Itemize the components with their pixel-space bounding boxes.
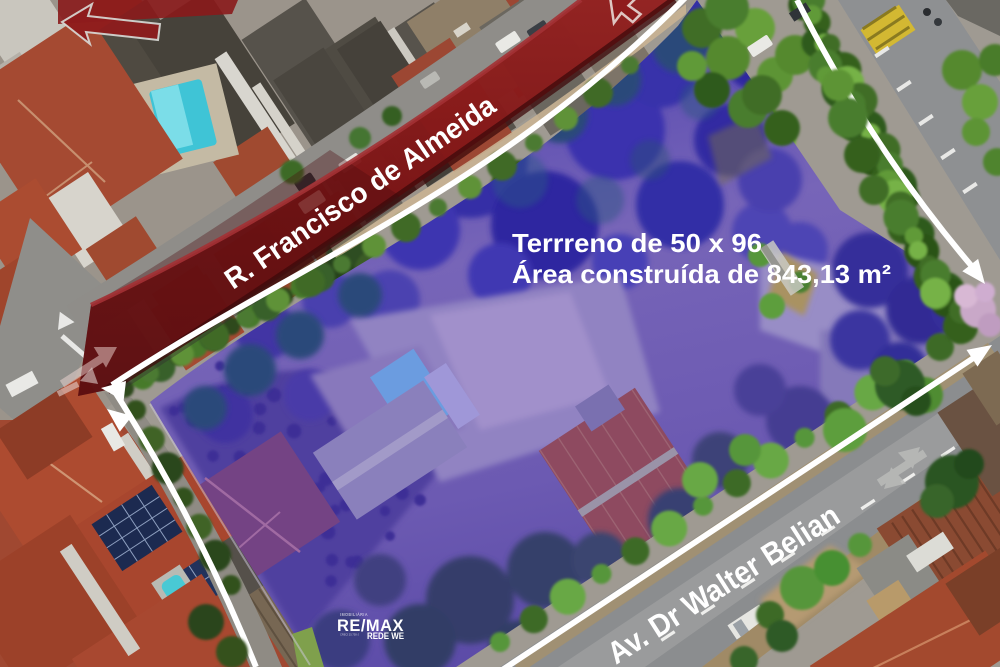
svg-text:Área construída de 843,13 m²: Área construída de 843,13 m² bbox=[512, 259, 891, 289]
svg-text:CRECI 25.750-J: CRECI 25.750-J bbox=[340, 633, 360, 637]
svg-text:Terrreno de 50 x 96: Terrreno de 50 x 96 bbox=[512, 228, 762, 258]
svg-text:REDE WE: REDE WE bbox=[367, 631, 404, 641]
